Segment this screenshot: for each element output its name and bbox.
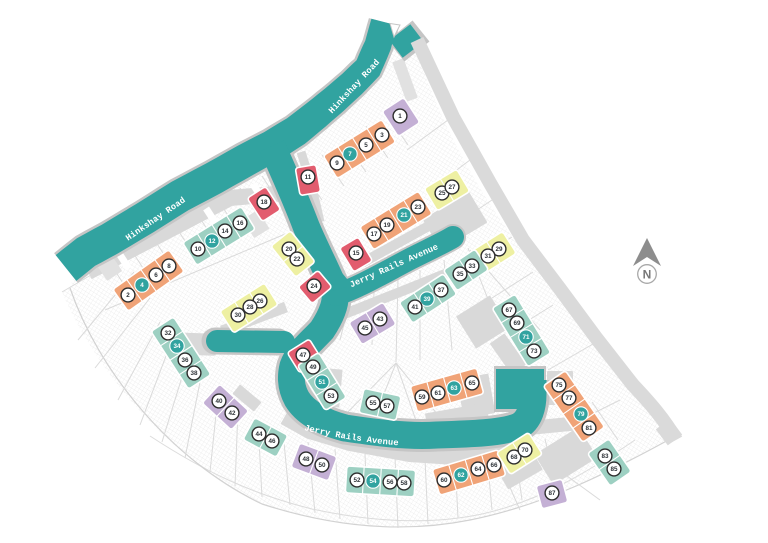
svg-text:3: 3 bbox=[380, 132, 384, 139]
svg-text:34: 34 bbox=[173, 343, 181, 350]
svg-text:46: 46 bbox=[268, 438, 276, 445]
svg-text:50: 50 bbox=[318, 462, 326, 469]
svg-text:77: 77 bbox=[565, 395, 573, 402]
svg-text:27: 27 bbox=[448, 184, 456, 191]
svg-text:68: 68 bbox=[510, 454, 518, 461]
svg-text:51: 51 bbox=[318, 379, 326, 386]
svg-text:42: 42 bbox=[228, 410, 236, 417]
svg-text:32: 32 bbox=[164, 330, 172, 337]
svg-text:57: 57 bbox=[383, 403, 391, 410]
svg-text:33: 33 bbox=[468, 263, 476, 270]
svg-text:85: 85 bbox=[610, 466, 618, 473]
svg-text:43: 43 bbox=[376, 316, 384, 323]
svg-text:58: 58 bbox=[400, 480, 408, 487]
svg-text:87: 87 bbox=[548, 490, 556, 497]
svg-text:18: 18 bbox=[260, 199, 268, 206]
svg-text:61: 61 bbox=[434, 390, 442, 397]
svg-text:53: 53 bbox=[327, 393, 335, 400]
svg-text:64: 64 bbox=[474, 466, 482, 473]
svg-text:35: 35 bbox=[456, 271, 464, 278]
svg-text:36: 36 bbox=[181, 357, 189, 364]
svg-text:73: 73 bbox=[530, 348, 538, 355]
svg-text:22: 22 bbox=[293, 256, 301, 263]
svg-text:79: 79 bbox=[577, 411, 585, 418]
svg-text:66: 66 bbox=[490, 462, 498, 469]
svg-text:N: N bbox=[643, 268, 652, 282]
svg-text:25: 25 bbox=[438, 190, 446, 197]
svg-text:47: 47 bbox=[299, 352, 307, 359]
svg-text:75: 75 bbox=[555, 382, 563, 389]
svg-text:59: 59 bbox=[418, 394, 426, 401]
svg-text:31: 31 bbox=[484, 253, 492, 260]
svg-text:48: 48 bbox=[302, 456, 310, 463]
svg-text:49: 49 bbox=[309, 364, 317, 371]
svg-text:4: 4 bbox=[140, 282, 144, 289]
svg-text:26: 26 bbox=[256, 298, 264, 305]
svg-text:8: 8 bbox=[167, 263, 171, 270]
svg-text:44: 44 bbox=[255, 431, 263, 438]
svg-text:28: 28 bbox=[246, 304, 254, 311]
svg-text:71: 71 bbox=[522, 334, 530, 341]
svg-text:16: 16 bbox=[236, 220, 244, 227]
svg-text:69: 69 bbox=[513, 320, 521, 327]
svg-text:20: 20 bbox=[285, 246, 293, 253]
svg-text:67: 67 bbox=[505, 307, 513, 314]
svg-text:52: 52 bbox=[353, 477, 361, 484]
svg-text:55: 55 bbox=[369, 400, 377, 407]
svg-text:41: 41 bbox=[411, 304, 419, 311]
svg-text:11: 11 bbox=[305, 174, 312, 181]
svg-text:19: 19 bbox=[383, 222, 391, 229]
svg-text:1: 1 bbox=[398, 113, 402, 120]
svg-text:54: 54 bbox=[369, 478, 377, 485]
svg-text:56: 56 bbox=[386, 479, 394, 486]
svg-text:7: 7 bbox=[348, 151, 352, 158]
svg-text:6: 6 bbox=[154, 272, 158, 279]
svg-text:12: 12 bbox=[208, 238, 216, 245]
svg-text:83: 83 bbox=[601, 453, 609, 460]
svg-text:62: 62 bbox=[457, 472, 465, 479]
svg-text:70: 70 bbox=[521, 447, 529, 454]
svg-text:30: 30 bbox=[234, 312, 242, 319]
svg-text:10: 10 bbox=[194, 246, 202, 253]
svg-text:14: 14 bbox=[221, 228, 229, 235]
svg-text:65: 65 bbox=[468, 380, 476, 387]
svg-text:2: 2 bbox=[126, 292, 130, 299]
svg-text:21: 21 bbox=[400, 212, 408, 219]
svg-text:15: 15 bbox=[352, 250, 360, 257]
svg-text:60: 60 bbox=[440, 477, 448, 484]
svg-text:81: 81 bbox=[585, 425, 593, 432]
svg-text:5: 5 bbox=[364, 142, 368, 149]
svg-text:40: 40 bbox=[215, 398, 223, 405]
svg-text:39: 39 bbox=[423, 296, 431, 303]
svg-text:37: 37 bbox=[437, 287, 445, 294]
svg-text:9: 9 bbox=[335, 160, 339, 167]
svg-text:45: 45 bbox=[361, 325, 369, 332]
svg-text:29: 29 bbox=[495, 246, 503, 253]
svg-text:24: 24 bbox=[310, 283, 318, 290]
svg-text:23: 23 bbox=[414, 204, 422, 211]
svg-text:38: 38 bbox=[190, 370, 198, 377]
svg-text:63: 63 bbox=[450, 385, 458, 392]
svg-text:17: 17 bbox=[370, 231, 378, 238]
